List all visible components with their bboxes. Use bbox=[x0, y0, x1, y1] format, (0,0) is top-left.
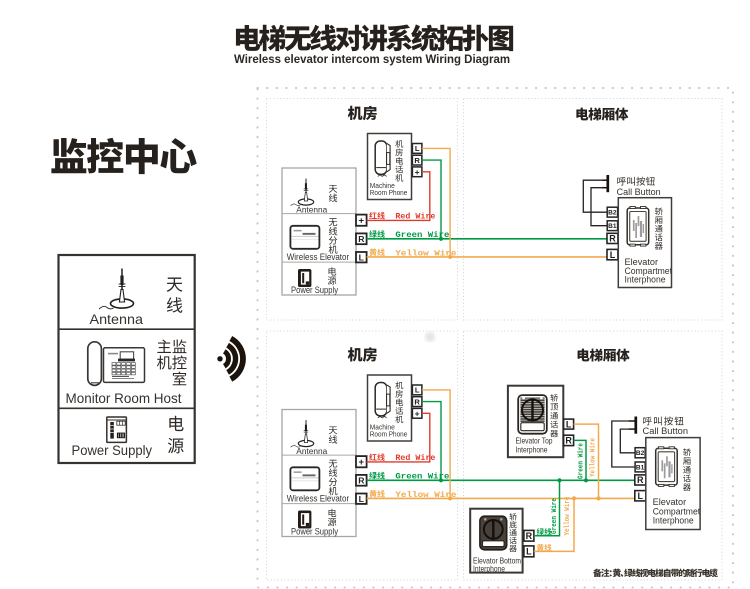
svg-text:Antenna: Antenna bbox=[296, 446, 327, 456]
svg-text:L: L bbox=[610, 250, 616, 260]
svg-text:Monitor Room Host: Monitor Room Host bbox=[66, 390, 182, 406]
svg-text:L: L bbox=[359, 494, 364, 504]
svg-text:Wireless Elevator: Wireless Elevator bbox=[287, 494, 350, 504]
svg-text:Interphone: Interphone bbox=[473, 564, 505, 574]
svg-text:Call Button: Call Button bbox=[643, 426, 689, 437]
svg-text:L: L bbox=[638, 491, 644, 501]
svg-text:B2: B2 bbox=[608, 210, 617, 217]
svg-text:+: + bbox=[415, 167, 420, 177]
svg-text:Wireless elevator intercom sys: Wireless elevator intercom system Wiring… bbox=[234, 52, 510, 66]
svg-text:Interphone: Interphone bbox=[625, 275, 666, 285]
svg-text:R: R bbox=[637, 475, 644, 485]
svg-text:R: R bbox=[358, 475, 365, 485]
svg-text:L: L bbox=[415, 386, 420, 395]
svg-text:Wireless Elevator: Wireless Elevator bbox=[287, 252, 350, 262]
svg-text:+: + bbox=[359, 216, 365, 227]
svg-text:Yellow Wire: Yellow Wire bbox=[590, 438, 598, 477]
svg-text:Interphone: Interphone bbox=[516, 444, 548, 454]
svg-text:Interphone: Interphone bbox=[653, 516, 694, 526]
svg-text:R: R bbox=[414, 156, 420, 165]
svg-text:Green Wire: Green Wire bbox=[551, 498, 559, 534]
svg-text:Antenna: Antenna bbox=[296, 204, 327, 214]
svg-text:Call Button: Call Button bbox=[617, 187, 661, 198]
svg-text:+: + bbox=[415, 408, 420, 418]
svg-text:R: R bbox=[609, 234, 616, 244]
svg-text:Power Supply: Power Supply bbox=[291, 285, 338, 295]
svg-text:Green Wire: Green Wire bbox=[578, 443, 586, 479]
svg-text:R: R bbox=[526, 531, 533, 541]
svg-text:L: L bbox=[526, 547, 532, 557]
svg-text:R: R bbox=[565, 436, 572, 446]
svg-text:B2: B2 bbox=[636, 450, 645, 457]
svg-text:Room Phone: Room Phone bbox=[370, 430, 408, 439]
svg-text:B1: B1 bbox=[636, 464, 645, 471]
svg-text:L: L bbox=[566, 419, 572, 429]
svg-text:L: L bbox=[415, 144, 420, 153]
svg-text:Power Supply: Power Supply bbox=[291, 526, 338, 536]
svg-text:Room Phone: Room Phone bbox=[370, 188, 408, 197]
svg-text:B1: B1 bbox=[608, 223, 617, 230]
svg-text:R: R bbox=[358, 234, 365, 244]
svg-text:R: R bbox=[414, 397, 420, 406]
svg-text:Power Supply: Power Supply bbox=[72, 443, 153, 458]
svg-text:Antenna: Antenna bbox=[90, 312, 144, 327]
svg-text:Yellow Wire: Yellow Wire bbox=[564, 497, 572, 536]
svg-text:+: + bbox=[359, 457, 365, 468]
svg-text:L: L bbox=[359, 252, 364, 262]
